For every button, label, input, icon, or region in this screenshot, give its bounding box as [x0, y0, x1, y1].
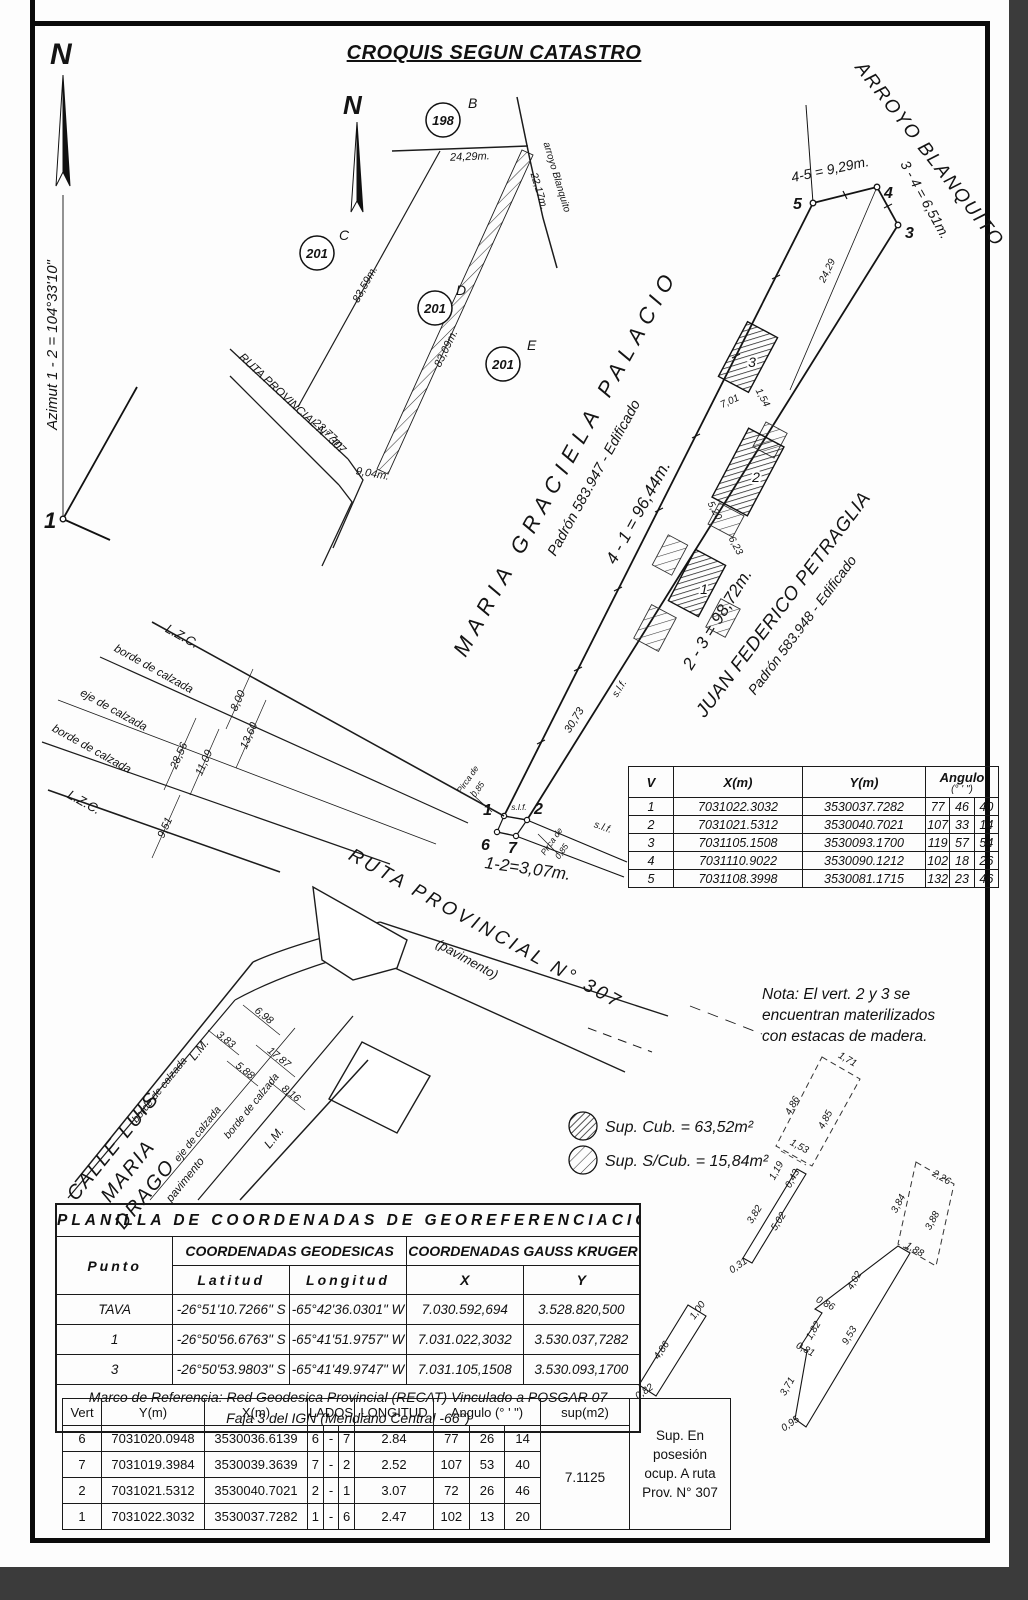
upper-sketch-lines [230, 97, 557, 566]
dim-8-00: 8,00 [228, 688, 248, 713]
dim-24-29m: 24,29m. [449, 150, 490, 163]
parcel-198-badge: 198 B [426, 95, 477, 137]
azimut-label: Azimut 1 - 2 = 104°33'10" [44, 259, 61, 430]
croquis-page: N Azimut 1 - 2 = 104°33'10" 1 N 198 [0, 0, 1028, 1600]
dim-6-23: 6,23 [726, 535, 745, 558]
planilla-header-gausskruger: COORDENADAS GAUSS KRUGER [406, 1237, 640, 1266]
v-table-header-y: Y(m) [803, 767, 926, 798]
dim-9-51: 9,51 [155, 816, 175, 840]
table-row: 17031022.3032 3530037.728277 4640 [629, 798, 999, 816]
detail-a-382: 3,82 [745, 1203, 765, 1226]
side-4-5-label: 4-5 = 9,29m. [790, 153, 871, 185]
btable-header-lados: LADOS [308, 1399, 355, 1426]
detail-b-388: 3,88 [923, 1209, 942, 1232]
vertex-3-label: 3 [905, 225, 914, 242]
slf-label-v12: s.l.f. [511, 802, 527, 812]
btable-header-x: X(m) [205, 1399, 308, 1426]
dim-22-17m: 22,17m. [527, 170, 550, 211]
dim-8-16: 8,16 [279, 1083, 303, 1105]
nota-line-2: encuentran materilizados [762, 1005, 977, 1026]
lzc-label-bottom: L.Z.C. [65, 787, 103, 817]
vertex-coordinates-table: V X(m) Y(m) Angulo (° ' ") 17031022.3032… [628, 766, 999, 888]
parcel-201c-number: 201 [305, 246, 328, 261]
vertex-7-label: 7 [508, 840, 518, 857]
planilla-header-punto: Punto [56, 1237, 173, 1295]
azimut-vertex-1-label: 1 [44, 508, 56, 533]
planilla-title: PLANILLA DE COORDENADAS DE GEOREFERENCIA… [56, 1204, 640, 1237]
building-2: 2 [708, 422, 787, 537]
building-3: 3 [718, 322, 777, 393]
nota-line-3: con estacas de madera. [762, 1026, 977, 1047]
v-table-header-angulo: Angulo (° ' ") [926, 767, 999, 798]
table-row: 27031021.5312 3530040.7021107 3314 [629, 816, 999, 834]
dim-28-56: 28,56 [168, 740, 191, 772]
parcel-198-number: 198 [432, 113, 454, 128]
planilla-header-longitud: Longitud [290, 1266, 407, 1295]
detail-a-153: 1,53 [788, 1137, 811, 1156]
road-north-lines [42, 622, 504, 872]
btable-header-vert: Vert [63, 1399, 102, 1426]
planilla-header-x: X [406, 1266, 523, 1295]
vertex-4-label: 4 [883, 185, 893, 202]
vertex-2-label: 2 [533, 801, 543, 818]
dim-3-83: 3,83 [214, 1029, 238, 1051]
calle-drago-lines [68, 962, 368, 1200]
building-3-label: 3 [748, 354, 756, 370]
btable-sup-value: 7.1125 [541, 1426, 630, 1530]
dim-83-59m: 83,59m. [350, 264, 380, 305]
lzc-label-top: L.Z.C. [163, 621, 201, 651]
eje-calle-label: eje de calzada [172, 1104, 224, 1164]
dim-6-98: 6,98 [252, 1005, 276, 1027]
lm-east-label: L.M. [261, 1124, 287, 1151]
slf-label-east: s.l.f. [592, 819, 613, 836]
detail-b-226: 2,26 [929, 1168, 953, 1188]
borde-label-1: borde de calzada [112, 643, 195, 696]
parcel-201d-letter: D [456, 282, 466, 298]
building-1-label: 1 [700, 581, 708, 597]
legend-hatch-light-icon [569, 1146, 597, 1174]
building-2-label: 2 [751, 469, 760, 485]
eje-label: eje de calzada [78, 687, 149, 733]
parcel-198-letter: B [468, 95, 477, 111]
vertex-6-label: 6 [481, 837, 490, 854]
detail-c-100: 1,00 [688, 1299, 708, 1322]
parcel-201d-number: 201 [423, 301, 446, 316]
parcel-201e-letter: E [527, 337, 537, 353]
table-row: TAVA-26°51'10.7266" S -65°42'36.0301" W7… [56, 1295, 640, 1325]
legend-hatch-dense-icon [569, 1112, 597, 1140]
btable-header-longitud: LONGITUD [355, 1399, 434, 1426]
detail-b-371: 3,71 [778, 1376, 797, 1398]
possession-surface-table: Vert Y(m) X(m) LADOS LONGITUD Angulo (° … [62, 1398, 731, 1530]
btable-side-label: Sup. En posesión ocup. A ruta Prov. N° 3… [630, 1399, 731, 1530]
table-row: 1-26°50'56.6763" S -65°41'51.9757" W7.03… [56, 1325, 640, 1355]
north-label-main: N [50, 38, 73, 71]
north-label-small: N [343, 90, 363, 120]
dim-1-54: 1,54 [753, 387, 772, 410]
table-row: 47031110.9022 3530090.1212102 1826 [629, 852, 999, 870]
dim-7-01: 7,01 [719, 393, 741, 411]
legend-scub-label: Sup. S/Cub. = 15,84m² [605, 1153, 769, 1170]
legend: Sup. Cub. = 63,52m² Sup. S/Cub. = 15,84m… [569, 1112, 769, 1174]
detail-a-485: 4,85 [816, 1108, 835, 1131]
page-title: CROQUIS SEGUN CATASTRO [318, 42, 670, 65]
nota-text: Nota: El vert. 2 y 3 se encuentran mater… [762, 984, 977, 1047]
btable-header-sup: sup(m2) [541, 1399, 630, 1426]
borde-calle-west-label: borde de calzada [130, 1055, 190, 1125]
table-row: 57031108.3998 3530081.1715132 2346 [629, 870, 999, 888]
planilla-header-latitud: Latitud [173, 1266, 290, 1295]
dim-13-60: 13,60 [238, 720, 261, 751]
detail-a-486: 4,86 [783, 1094, 802, 1117]
btable-header-y: Y(m) [102, 1399, 205, 1426]
dim-24-29-inner: 24,29 [817, 257, 838, 286]
dim-23-77m: 23,77m. [310, 416, 348, 453]
parcel-201c-badge: 201 C [300, 227, 350, 270]
north-arrow-small [351, 122, 363, 212]
table-row: 3-26°50'53.9803" S -65°41'49.9747" W7.03… [56, 1355, 640, 1385]
v-table-header-x: X(m) [674, 767, 803, 798]
planilla-header-geodesicas: COORDENADAS GEODESICAS [173, 1237, 407, 1266]
vertex-5-label: 5 [793, 196, 803, 213]
parcel-201c-letter: C [339, 227, 350, 243]
detail-a-171: 1,71 [836, 1050, 858, 1069]
parcel-201e-badge: 201 E [486, 337, 537, 381]
nota-line-1: Nota: El vert. 2 y 3 se [762, 984, 977, 1005]
btable-header-angulo: Angulo (° ' ") [434, 1399, 541, 1426]
owner-nw-name: MARIA GRACIELA PALACIO [448, 264, 683, 660]
detail-a-119: 1,19 [767, 1159, 786, 1182]
parcel-201e-number: 201 [491, 357, 514, 372]
legend-cub-label: Sup. Cub. = 63,52m² [605, 1119, 754, 1136]
azimut-vertex-1 [60, 387, 137, 540]
planilla-header-y: Y [523, 1266, 640, 1295]
dim-5-88: 5,88 [233, 1060, 257, 1082]
v-table-header-v: V [629, 767, 674, 798]
table-row: 37031105.1508 3530093.1700119 5754 [629, 834, 999, 852]
